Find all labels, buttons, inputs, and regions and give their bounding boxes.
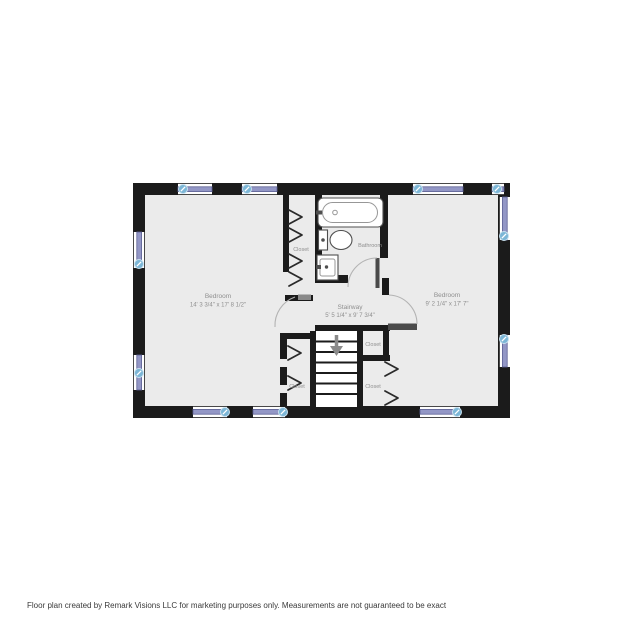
bathroom-label: Bathroom <box>358 243 382 249</box>
sink <box>316 255 338 280</box>
camera-icon[interactable] <box>493 185 502 194</box>
camera-icon[interactable] <box>243 185 252 194</box>
closet-lower-left-label: Closet <box>289 384 305 390</box>
closet-right-lower-label: Closet <box>365 384 381 390</box>
staircase <box>316 331 357 407</box>
bedroom-left-label: Bedroom <box>205 293 231 300</box>
camera-icon[interactable] <box>500 232 509 241</box>
floor-plan: Bedroom 14' 3 3/4" x 17' 8 1/2" Bedroom … <box>130 183 512 420</box>
page: { "floor_plan": { "rooms": { "bedroom_le… <box>0 0 640 640</box>
camera-icon[interactable] <box>453 408 462 417</box>
camera-icon[interactable] <box>500 335 509 344</box>
closet-upper-left-label: Closet <box>293 247 309 253</box>
bedroom-right-label: Bedroom <box>434 292 460 299</box>
bathtub <box>316 198 383 227</box>
camera-icon[interactable] <box>135 369 144 378</box>
camera-icon[interactable] <box>135 260 144 269</box>
stairway-label: Stairway <box>338 304 364 311</box>
camera-icon[interactable] <box>414 185 423 194</box>
camera-icon[interactable] <box>179 185 188 194</box>
closet-right-upper-label: Closet <box>365 342 381 348</box>
bedroom-right-dimensions: 9' 2 1/4" x 17' 7" <box>426 302 469 308</box>
camera-icon[interactable] <box>279 408 288 417</box>
toilet <box>319 230 353 250</box>
stairway-dimensions: 5' 5 1/4" x 9' 7 3/4" <box>325 313 375 319</box>
disclaimer-text: Floor plan created by Remark Visions LLC… <box>27 601 446 610</box>
camera-icon[interactable] <box>221 408 230 417</box>
bedroom-left-dimensions: 14' 3 3/4" x 17' 8 1/2" <box>190 303 246 309</box>
